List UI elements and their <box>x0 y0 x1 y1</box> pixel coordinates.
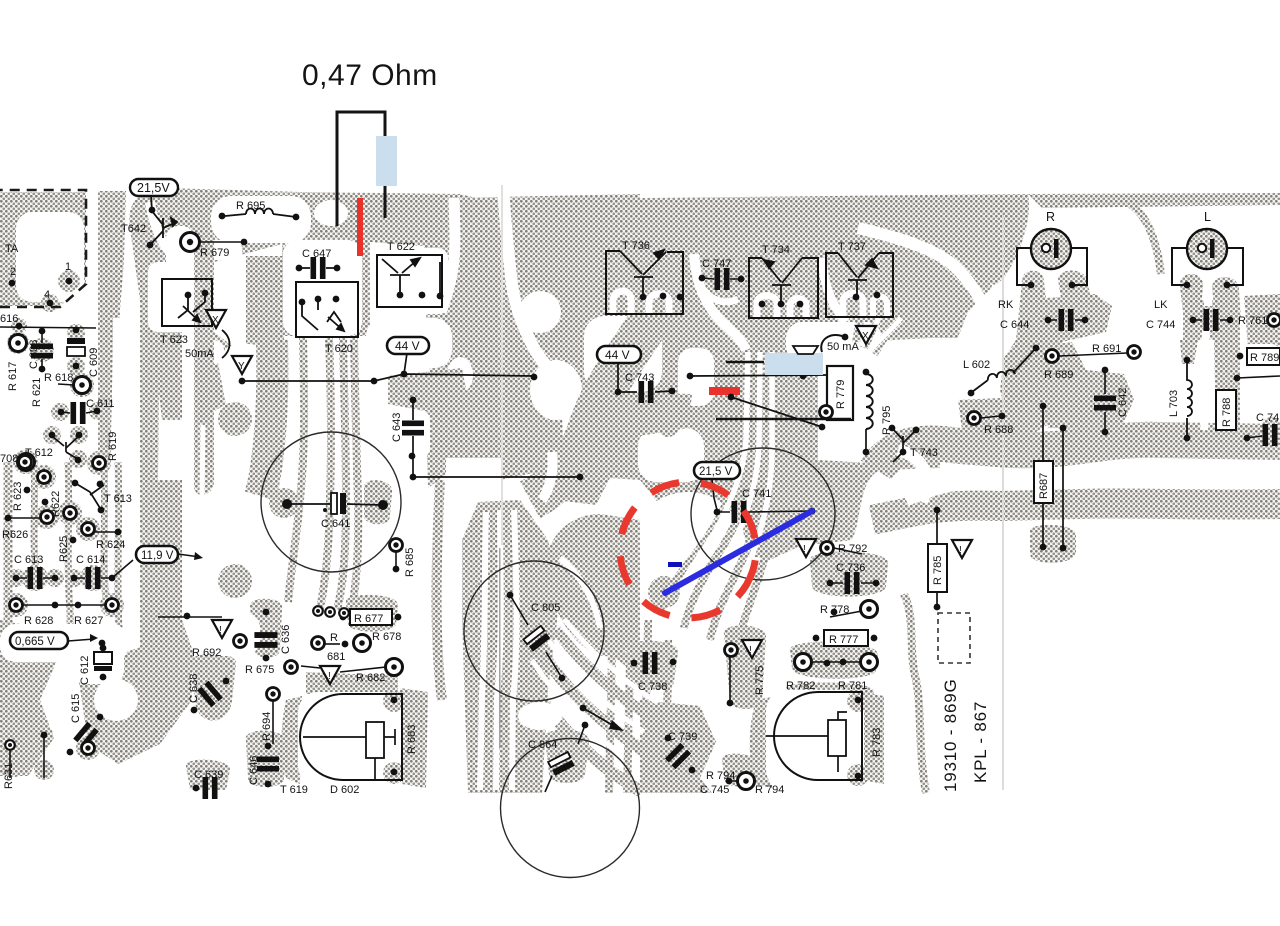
svg-text:0,665 V: 0,665 V <box>15 636 55 648</box>
svg-text:C 745: C 745 <box>700 784 729 796</box>
svg-text:21,5 V: 21,5 V <box>699 466 733 478</box>
svg-text:C 741: C 741 <box>742 488 771 500</box>
svg-text:R 621: R 621 <box>31 378 43 407</box>
svg-text:44 V: 44 V <box>395 339 420 353</box>
svg-text:C 642: C 642 <box>1117 388 1129 417</box>
svg-text:R626: R626 <box>2 529 28 541</box>
svg-text:R 692: R 692 <box>192 647 221 659</box>
svg-text:!: ! <box>959 545 962 556</box>
svg-text:R 761: R 761 <box>1238 315 1267 327</box>
svg-text:R 683: R 683 <box>406 725 418 754</box>
svg-text:R 624: R 624 <box>96 539 125 551</box>
svg-text:T 623: T 623 <box>160 334 188 346</box>
svg-text:R 777: R 777 <box>829 634 858 646</box>
svg-text:TA: TA <box>5 243 19 255</box>
svg-text:4: 4 <box>44 289 50 301</box>
svg-text:C 611: C 611 <box>86 398 115 410</box>
svg-text:C 612: C 612 <box>79 656 91 685</box>
svg-text:Y: Y <box>238 361 245 372</box>
svg-text:LK: LK <box>1154 299 1168 311</box>
svg-text:L 602: L 602 <box>963 359 990 371</box>
svg-text:R 775: R 775 <box>754 666 766 695</box>
svg-text:X: X <box>212 315 219 326</box>
svg-text:C 739: C 739 <box>668 731 697 743</box>
svg-text:T 619: T 619 <box>280 784 308 796</box>
svg-text:C 738: C 738 <box>638 681 667 693</box>
svg-text:R687: R687 <box>1038 473 1050 499</box>
svg-text:C 614: C 614 <box>76 554 105 566</box>
svg-text:708: 708 <box>0 453 18 465</box>
svg-text:C 615: C 615 <box>70 694 82 723</box>
svg-text:RK: RK <box>998 299 1014 311</box>
svg-text:R 779: R 779 <box>835 380 847 409</box>
svg-text:R 618: R 618 <box>44 372 73 384</box>
svg-text:R 688: R 688 <box>984 424 1013 436</box>
svg-text:681: 681 <box>327 651 345 663</box>
svg-text:!: ! <box>328 671 331 682</box>
svg-text:R: R <box>330 632 338 644</box>
svg-text:R 781: R 781 <box>838 680 867 692</box>
svg-text:R 617: R 617 <box>7 362 19 391</box>
svg-text:R631: R631 <box>3 763 15 789</box>
svg-text:2: 2 <box>10 266 16 278</box>
svg-text:44 V: 44 V <box>605 348 630 362</box>
svg-text:C 613: C 613 <box>14 554 43 566</box>
svg-text:19310 - 869G: 19310 - 869G <box>941 678 960 792</box>
svg-text:R 694: R 694 <box>261 712 273 741</box>
svg-text:R 627: R 627 <box>74 615 103 627</box>
svg-text:C 647: C 647 <box>302 248 331 260</box>
svg-text:R 682: R 682 <box>356 672 385 684</box>
svg-text:R 689: R 689 <box>1044 369 1073 381</box>
svg-text:C 805: C 805 <box>531 602 560 614</box>
svg-text:T 734: T 734 <box>762 244 790 256</box>
svg-text:C 736: C 736 <box>836 562 865 574</box>
svg-text:C 864: C 864 <box>528 739 557 751</box>
svg-text:R625: R625 <box>58 536 70 562</box>
svg-text:C 744: C 744 <box>1146 319 1175 331</box>
svg-text:R 685: R 685 <box>404 548 416 577</box>
svg-text:R: R <box>1046 210 1055 224</box>
svg-text:!: ! <box>749 645 752 656</box>
svg-text:50 mA: 50 mA <box>827 341 859 353</box>
svg-text:11,9 V: 11,9 V <box>141 550 174 562</box>
svg-text:R 628: R 628 <box>24 615 53 627</box>
svg-text:T 620: T 620 <box>325 343 353 355</box>
svg-text:T 737: T 737 <box>838 241 866 253</box>
svg-text:616: 616 <box>0 313 18 325</box>
svg-text:R 679: R 679 <box>200 247 229 259</box>
svg-text:1: 1 <box>65 261 71 273</box>
svg-text:C 641: C 641 <box>321 518 350 530</box>
svg-text:C 644: C 644 <box>1000 319 1029 331</box>
svg-text:T 622: T 622 <box>387 241 415 253</box>
svg-text:C 638: C 638 <box>188 674 200 703</box>
svg-text:R 695: R 695 <box>236 200 265 212</box>
svg-text:21,5V: 21,5V <box>137 181 170 195</box>
svg-text:C 639: C 639 <box>194 769 223 781</box>
svg-text:50mA: 50mA <box>185 348 214 360</box>
svg-text:R 785: R 785 <box>932 556 944 585</box>
svg-text:R 619: R 619 <box>107 432 119 461</box>
svg-text:!: ! <box>219 625 222 636</box>
svg-text:C 74: C 74 <box>1256 412 1279 424</box>
svg-text:T 743: T 743 <box>910 447 938 459</box>
svg-text:0,47 Ohm: 0,47 Ohm <box>302 59 438 92</box>
svg-text:T642: T642 <box>121 223 146 235</box>
svg-text:!: ! <box>803 544 806 555</box>
svg-text:T 613: T 613 <box>104 493 132 505</box>
svg-text:C 609: C 609 <box>88 348 100 377</box>
svg-text:R 789: R 789 <box>1250 352 1279 364</box>
svg-text:KPL - 867: KPL - 867 <box>971 701 990 783</box>
svg-text:R 677: R 677 <box>354 613 383 625</box>
svg-text:R 623: R 623 <box>12 482 24 511</box>
svg-text:T 736: T 736 <box>622 240 650 252</box>
svg-text:D 602: D 602 <box>330 784 359 796</box>
svg-text:R 678: R 678 <box>372 631 401 643</box>
svg-text:R 783: R 783 <box>871 728 883 757</box>
svg-text:R 794: R 794 <box>755 784 784 796</box>
svg-text:R 788: R 788 <box>1221 398 1233 427</box>
svg-text:C 643: C 643 <box>391 413 403 442</box>
svg-text:C 636: C 636 <box>280 625 292 654</box>
svg-text:X: X <box>862 331 869 342</box>
svg-text:L 703: L 703 <box>1168 390 1180 417</box>
svg-text:L: L <box>1204 210 1211 224</box>
svg-text:R 675: R 675 <box>245 664 274 676</box>
svg-text:R 782: R 782 <box>786 680 815 692</box>
